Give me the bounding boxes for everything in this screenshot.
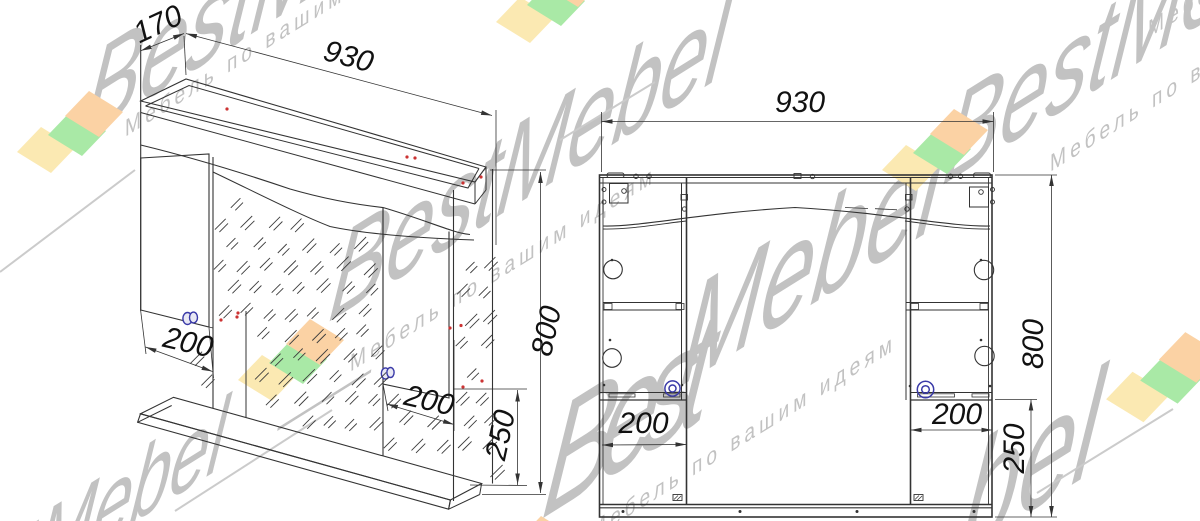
svg-text:200: 200 bbox=[931, 398, 982, 431]
svg-text:800: 800 bbox=[1017, 319, 1050, 369]
svg-text:930: 930 bbox=[775, 86, 825, 119]
svg-text:250: 250 bbox=[998, 423, 1031, 474]
svg-text:200: 200 bbox=[617, 407, 668, 440]
